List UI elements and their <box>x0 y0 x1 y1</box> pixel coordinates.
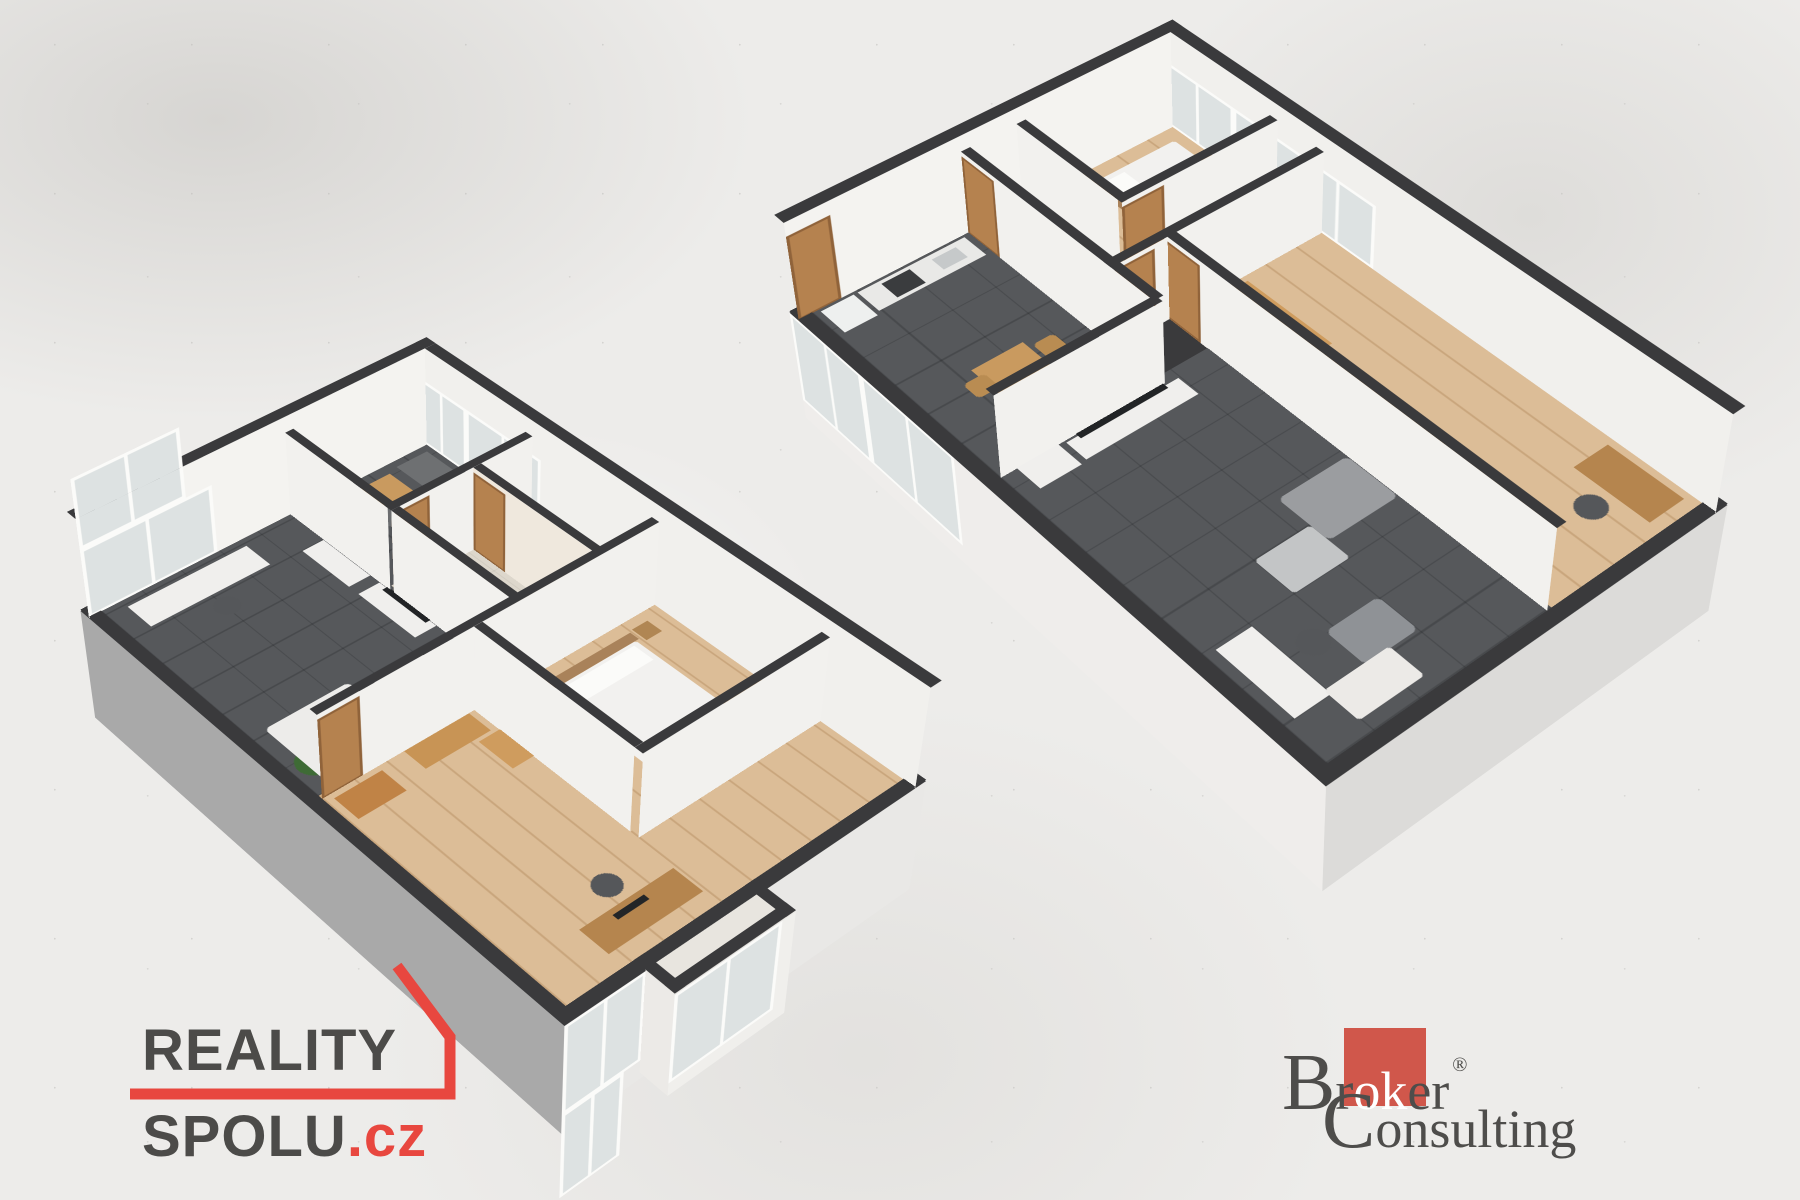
logo-spolu-text: SPOLU <box>142 1104 347 1169</box>
real-estate-floorplan-poster: { "logos": { "reality": { "line1": "REAL… <box>0 0 1800 1200</box>
consulting-initial: C <box>1322 1077 1375 1165</box>
reality-spolu-logo: REALITY SPOLU.cz <box>118 948 498 1184</box>
logo-word-consulting: Consulting <box>1322 1102 1702 1156</box>
logo-tld-text: .cz <box>347 1104 427 1169</box>
logo-word-spolu: SPOLU.cz <box>142 1108 427 1166</box>
floor-plan-a <box>101 445 903 1007</box>
floor-plan-b <box>812 128 1702 765</box>
logo-word-reality: REALITY <box>142 1022 397 1080</box>
registered-mark: ® <box>1452 1054 1467 1076</box>
consulting-text: onsulting <box>1375 1099 1576 1159</box>
broker-consulting-logo: Broker® Consulting <box>1282 1018 1702 1178</box>
